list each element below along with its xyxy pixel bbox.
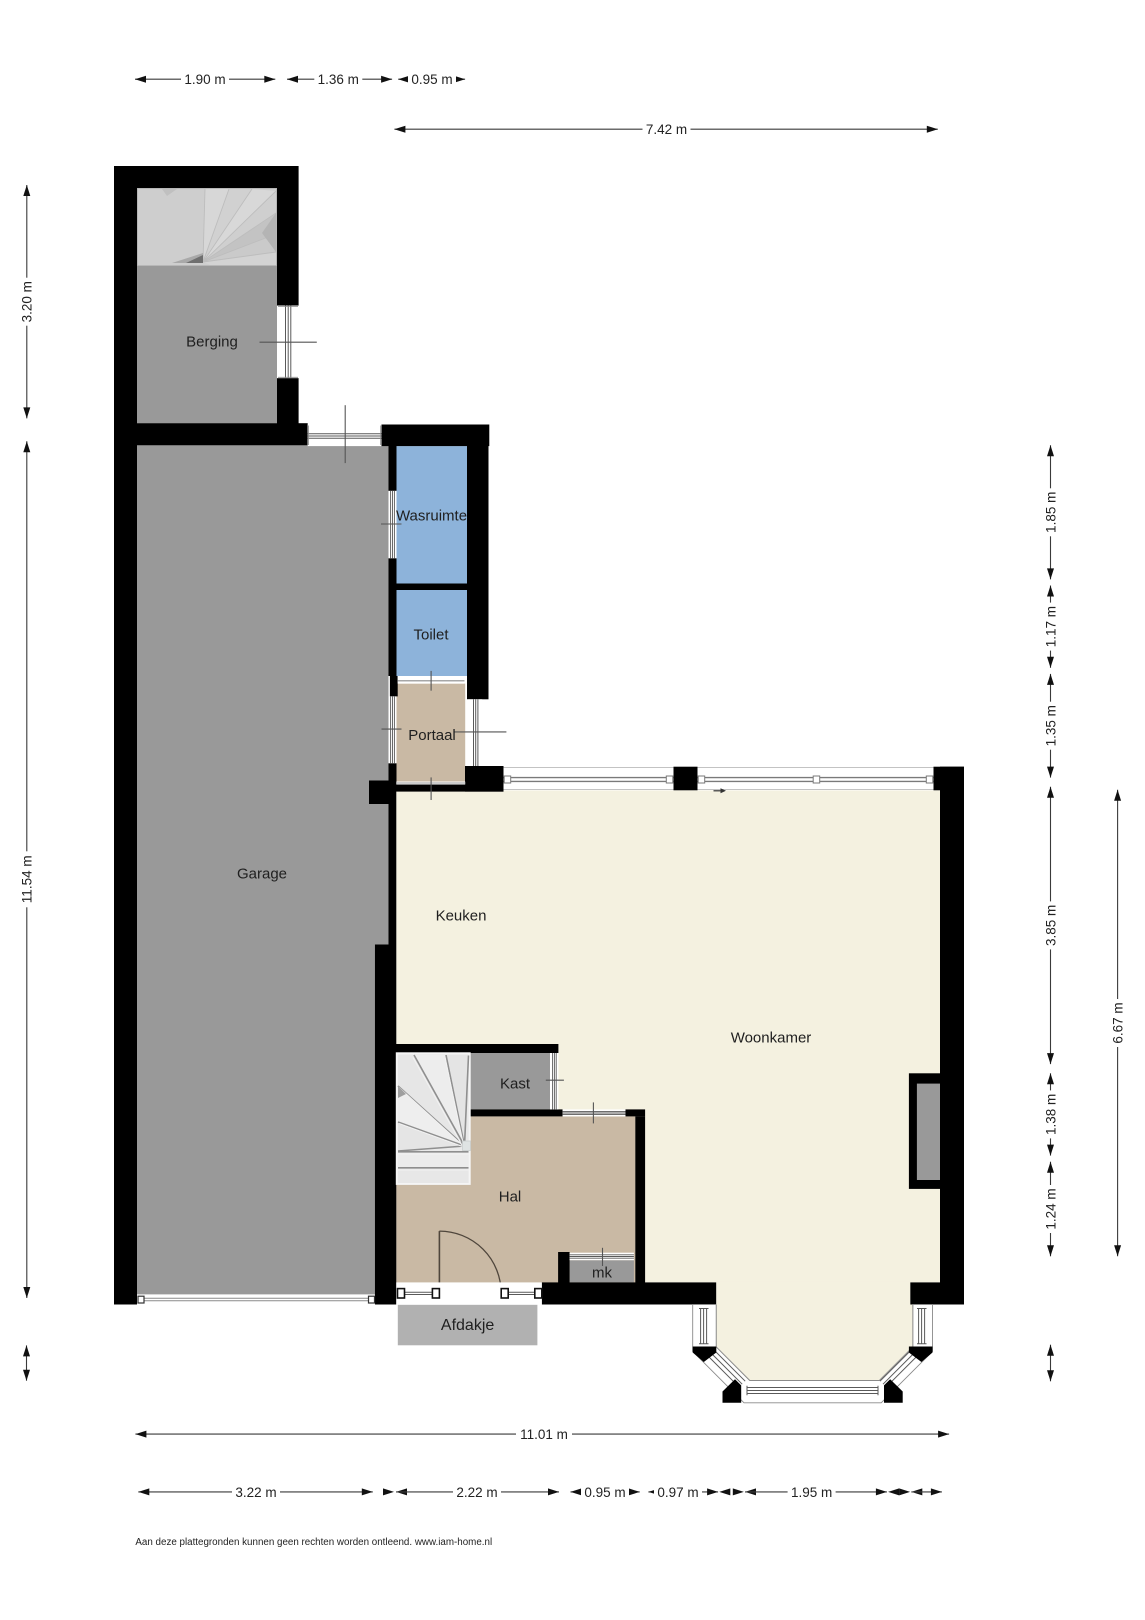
svg-text:Garage: Garage: [237, 865, 287, 882]
svg-text:7.42 m: 7.42 m: [646, 122, 687, 137]
svg-text:2.22 m: 2.22 m: [456, 1485, 497, 1500]
svg-text:Afdakje: Afdakje: [441, 1317, 494, 1334]
svg-text:1.36 m: 1.36 m: [318, 72, 359, 87]
svg-text:Keuken: Keuken: [436, 907, 487, 924]
svg-text:1.35 m: 1.35 m: [1043, 705, 1058, 746]
svg-text:0.95 m: 0.95 m: [411, 72, 452, 87]
svg-text:11.54 m: 11.54 m: [20, 855, 35, 903]
svg-text:Toilet: Toilet: [413, 626, 449, 643]
svg-text:1.85 m: 1.85 m: [1043, 492, 1058, 533]
svg-text:3.20 m: 3.20 m: [20, 281, 35, 322]
svg-text:1.90 m: 1.90 m: [184, 72, 225, 87]
svg-text:Wasruimte: Wasruimte: [396, 507, 467, 524]
svg-text:11.01 m: 11.01 m: [520, 1427, 568, 1442]
svg-text:3.22 m: 3.22 m: [235, 1485, 276, 1500]
svg-text:mk: mk: [592, 1265, 612, 1282]
svg-text:0.97 m: 0.97 m: [657, 1485, 698, 1500]
svg-text:Berging: Berging: [186, 333, 238, 350]
svg-text:3.85 m: 3.85 m: [1043, 905, 1058, 946]
svg-text:Portaal: Portaal: [408, 727, 456, 744]
svg-text:Woonkamer: Woonkamer: [731, 1029, 812, 1046]
svg-text:6.67 m: 6.67 m: [1110, 1002, 1125, 1043]
svg-text:0.95 m: 0.95 m: [584, 1485, 625, 1500]
svg-text:1.24 m: 1.24 m: [1043, 1188, 1058, 1229]
svg-text:Hal: Hal: [499, 1188, 522, 1205]
svg-text:1.95 m: 1.95 m: [791, 1485, 832, 1500]
svg-text:Kast: Kast: [500, 1075, 531, 1092]
svg-text:Aan deze plattegronden kunnen: Aan deze plattegronden kunnen geen recht…: [135, 1537, 492, 1548]
svg-text:1.17 m: 1.17 m: [1043, 606, 1058, 647]
svg-text:1.38 m: 1.38 m: [1043, 1094, 1058, 1135]
